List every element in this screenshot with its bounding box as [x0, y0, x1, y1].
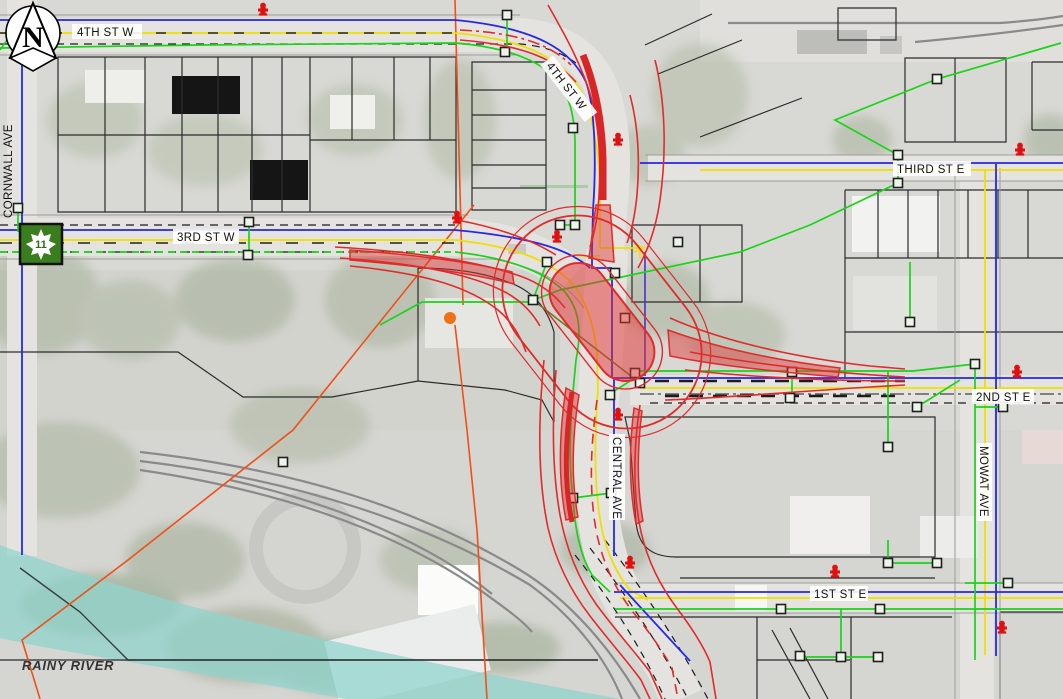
river-label-rainy-river: RAINY RIVER [22, 658, 114, 673]
street-label-2nd-st-e: 2ND ST E [972, 389, 1034, 404]
street-label-central-ave: CENTRAL AVE [609, 434, 625, 520]
street-label-4th-st-w-top: 4TH ST W [72, 24, 142, 39]
map-canvas[interactable]: 4TH ST W 4TH ST W 3RD ST W THIRD ST E 2N… [0, 0, 1063, 699]
street-label-3rd-st-w: 3RD ST W [173, 229, 239, 244]
street-label-third-st-e: THIRD ST E [893, 161, 971, 176]
street-label-cornwall-ave: CORNWALL AVE [3, 124, 15, 218]
north-arrow-icon: N [6, 3, 60, 71]
svg-text:1ST ST E: 1ST ST E [814, 589, 867, 601]
svg-text:CENTRAL AVE: CENTRAL AVE [610, 437, 622, 519]
orange-pole-marker [444, 312, 456, 324]
street-label-1st-st-e: 1ST ST E [810, 586, 868, 601]
svg-text:THIRD ST E: THIRD ST E [897, 164, 965, 176]
svg-text:N: N [22, 21, 44, 54]
aerial-imagery [0, 0, 1063, 699]
svg-text:2ND ST E: 2ND ST E [976, 392, 1031, 404]
svg-text:CORNWALL AVE: CORNWALL AVE [3, 124, 15, 218]
svg-text:MOWAT AVE: MOWAT AVE [977, 446, 989, 517]
svg-text:11: 11 [35, 239, 47, 251]
svg-text:3RD ST W: 3RD ST W [177, 232, 235, 244]
highway-11-route-marker-icon: 11 [20, 224, 62, 264]
svg-text:RAINY RIVER: RAINY RIVER [22, 658, 114, 673]
street-label-mowat-ave: MOWAT AVE [976, 443, 992, 521]
svg-text:4TH ST W: 4TH ST W [77, 27, 134, 39]
